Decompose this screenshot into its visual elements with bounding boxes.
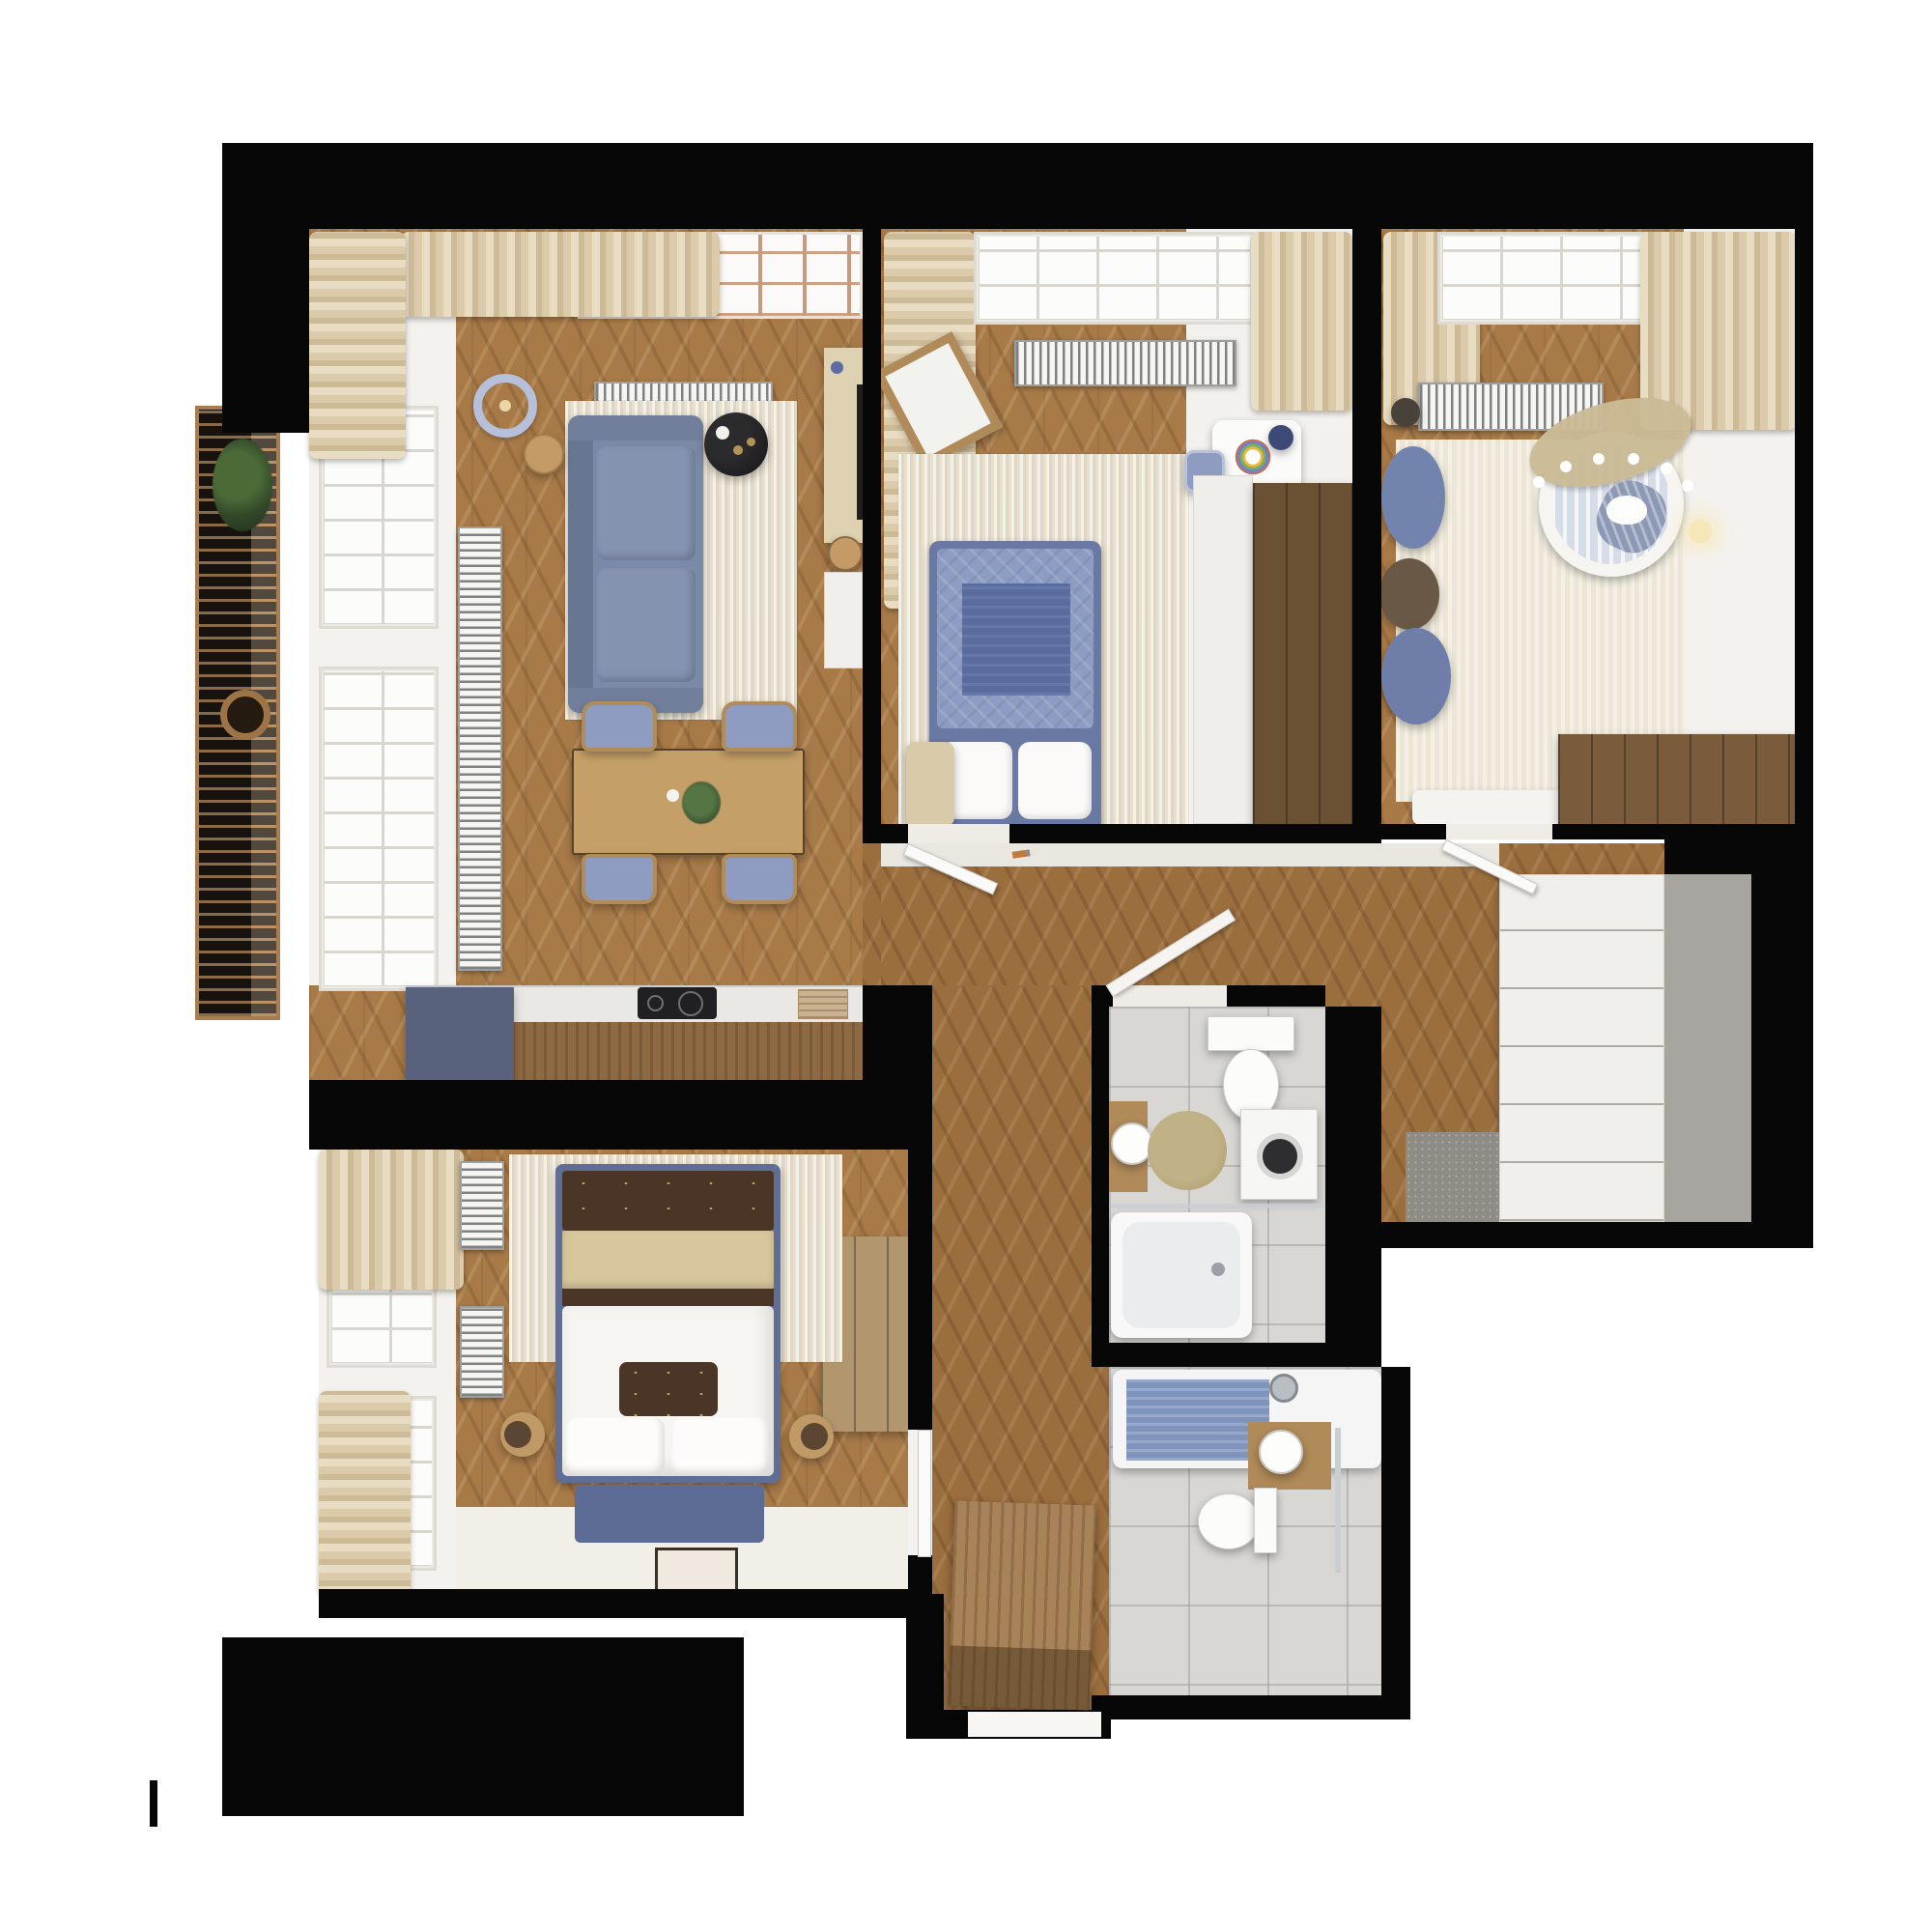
toilet-2-tank: [1254, 1488, 1277, 1553]
bath1-sink: [1111, 1122, 1153, 1165]
bedroom-curtain-right: [1251, 232, 1352, 411]
tv-console-vase: [831, 361, 843, 374]
nursery-wall-light: [1689, 520, 1712, 543]
floor-plan-canvas: [0, 0, 1932, 1932]
bathtub-2: [1113, 1370, 1381, 1468]
hall-wardrobe: [1499, 874, 1664, 1222]
bed-runner: [962, 583, 1070, 696]
wall-hall-right: [1751, 838, 1813, 1246]
crib-pompom-1: [1533, 476, 1545, 488]
dining-table: [572, 749, 805, 855]
wall-living-bedroom: [863, 229, 881, 843]
bath1-round-rug: [1148, 1111, 1227, 1190]
bath2-sink: [1259, 1430, 1303, 1474]
bedroom-door-opening: [908, 824, 1009, 843]
master-door-leaf: [918, 1430, 931, 1557]
hall-doormat: [1406, 1132, 1499, 1222]
wall-bath2-bottom: [1092, 1695, 1410, 1719]
dining-chair-3: [582, 854, 657, 904]
bath1-glass-screen: [1111, 1204, 1323, 1208]
shower-head: [1269, 1374, 1298, 1403]
master-bed-brown-band: [562, 1171, 774, 1231]
dining-cup: [667, 789, 679, 802]
master-bed-accent-pillow: [619, 1362, 718, 1416]
wall-left-upper: [222, 143, 309, 433]
wall-top: [222, 143, 1813, 229]
front-door-leaf: [948, 1501, 1095, 1711]
crib-pompom-5: [1661, 463, 1672, 474]
living-room-opening: [863, 843, 881, 985]
ring-floor-lamp: [473, 374, 537, 438]
sofa: [568, 415, 703, 713]
wall-hall-bottom: [1381, 1222, 1813, 1248]
wall-bottom-left-slab: [222, 1637, 744, 1816]
master-bed-brown-band-2: [562, 1289, 774, 1306]
wall-bath1-left: [1092, 985, 1109, 1367]
desk-lamp: [1268, 425, 1293, 450]
front-door-threshold: [968, 1712, 1101, 1737]
crib-cloud-pillow: [1606, 496, 1647, 525]
wall-bath1-right: [1325, 1007, 1381, 1367]
balcony-plant: [213, 439, 272, 531]
crib-pompom-4: [1628, 453, 1639, 465]
nursery-window: [1437, 232, 1670, 325]
crib-pompom-2: [1560, 461, 1572, 472]
dining-chair-2: [722, 701, 797, 752]
ring-lamp-bulb: [499, 400, 511, 412]
front-door-lower-panel: [948, 1645, 1091, 1710]
living-curtain-top: [401, 232, 720, 317]
bedroom-bed: [929, 541, 1101, 831]
bathtub-1-basin: [1122, 1222, 1240, 1328]
sofa-cushion-1: [597, 446, 696, 560]
bedroom-radiator: [1014, 340, 1236, 386]
nightstand-left-sphere: [504, 1421, 531, 1448]
sofa-armrest-top: [568, 415, 703, 440]
bed-pillow-right: [1018, 742, 1092, 819]
nursery-door-opening: [1446, 824, 1552, 839]
cooktop-burner-2: [678, 991, 703, 1016]
living-radiator-left: [458, 526, 502, 971]
bedroom-wardrobe: [1253, 483, 1352, 824]
bedroom-armchair: [906, 742, 954, 827]
sofa-backrest: [568, 415, 593, 713]
floor-picture: [655, 1548, 738, 1592]
bath1-door-opening: [1113, 985, 1227, 1007]
coffee-table-cup: [716, 426, 729, 440]
nursery-low-cabinet: [1558, 734, 1797, 825]
nursery-bench: [1412, 790, 1565, 825]
slim-white-cabinet: [824, 572, 863, 668]
scale-tick: [150, 1780, 157, 1827]
master-curtain-top: [319, 1150, 464, 1290]
nursery-pendant-lamp: [1391, 398, 1420, 427]
crib: [1539, 432, 1684, 577]
bathtub-1-drain: [1211, 1263, 1225, 1276]
master-bed-pillow-left: [566, 1417, 665, 1475]
wall-master-bottom: [319, 1589, 932, 1618]
dining-chair-4: [722, 854, 797, 904]
bathtub-1: [1111, 1212, 1252, 1338]
balcony-table: [220, 690, 270, 740]
master-radiator-2: [460, 1306, 504, 1398]
bedroom-window: [974, 232, 1255, 325]
washing-machine: [1240, 1109, 1318, 1200]
wall-kitchen-block: [863, 985, 932, 1082]
round-stool: [828, 536, 863, 571]
hallway-baseboard: [881, 843, 1499, 867]
hall-wardrobe-side: [1664, 874, 1751, 1222]
kitchen-sink-tray: [798, 989, 848, 1019]
bath2-mirror-strip: [1335, 1428, 1341, 1573]
crib-pompom-6: [1682, 480, 1693, 492]
toilet-1-tank: [1207, 1016, 1294, 1051]
nursery-pouf-brown: [1379, 558, 1439, 630]
coffee-table: [704, 412, 768, 476]
wall-bath2-right: [1381, 1367, 1410, 1719]
nightstand-right: [789, 1414, 834, 1459]
nightstand-left: [500, 1412, 545, 1457]
nightstand-right-sphere: [801, 1423, 828, 1450]
nursery-pouf-blue-1: [1381, 446, 1445, 549]
master-blue-mat: [575, 1485, 764, 1543]
bedroom-white-column: [1193, 475, 1253, 824]
coffee-table-dish-2: [747, 438, 755, 446]
kitchen-cooktop: [638, 987, 717, 1019]
side-table: [524, 434, 564, 474]
washer-door: [1257, 1133, 1303, 1179]
nursery-pouf-blue-2: [1381, 628, 1451, 724]
master-bed-pillow-right: [671, 1417, 770, 1475]
wall-hall-step: [1664, 838, 1813, 874]
balcony-deck: [195, 406, 280, 1020]
wall-bath-middle: [1092, 1343, 1381, 1367]
dining-chair-1: [582, 701, 657, 752]
wall-master-top: [309, 1080, 932, 1150]
toilet-2-bowl: [1198, 1493, 1260, 1549]
sofa-cushion-2: [597, 568, 696, 682]
cooktop-burner-1: [647, 995, 664, 1011]
master-bed: [555, 1164, 781, 1483]
kitchen-blue-cabinet: [406, 987, 514, 1082]
coffee-table-dish-1: [733, 445, 743, 455]
master-radiator-1: [460, 1161, 504, 1250]
master-bed-beige-band: [562, 1231, 774, 1289]
wall-bedroom-nursery: [1352, 229, 1381, 838]
wall-right-upper: [1795, 143, 1813, 838]
dining-plant: [682, 781, 721, 824]
living-window-2: [319, 667, 439, 991]
living-curtain-left: [309, 232, 406, 459]
crib-pompom-3: [1593, 453, 1605, 465]
master-curtain-left: [319, 1391, 411, 1594]
